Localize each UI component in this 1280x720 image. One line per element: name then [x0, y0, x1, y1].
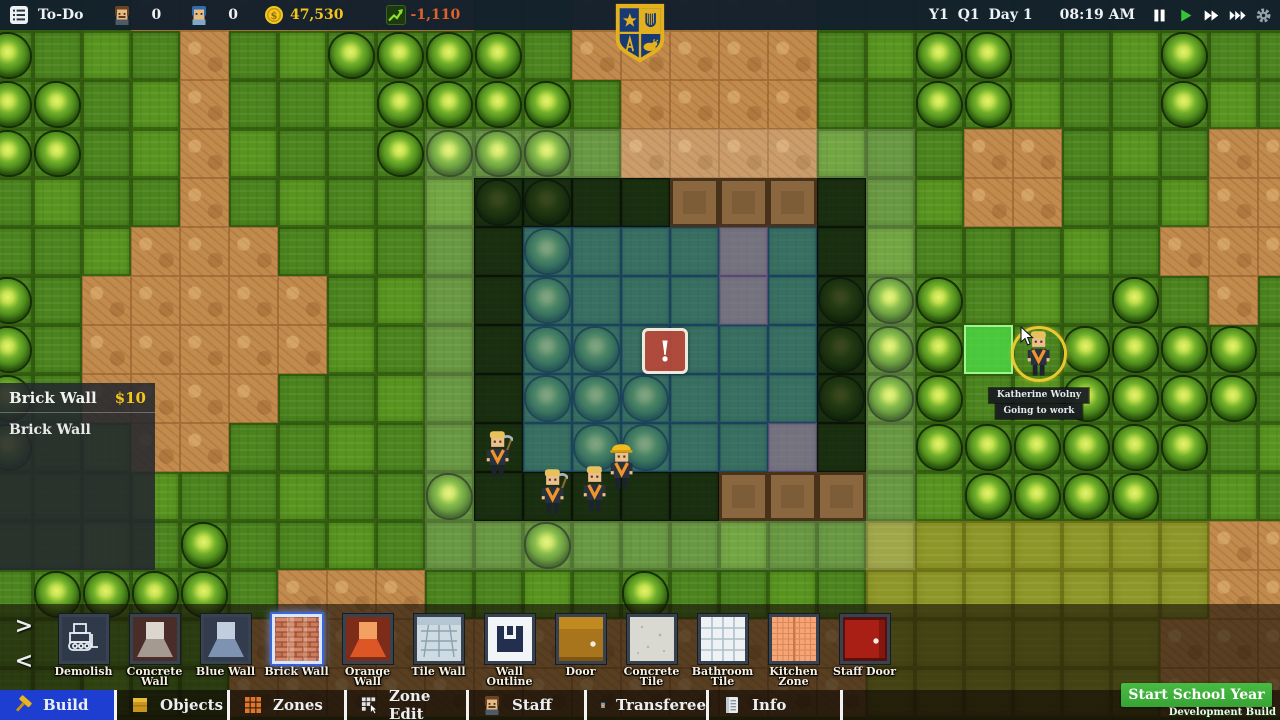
bush-icon [1114, 377, 1157, 420]
brick-wall-label: Brick Wall [264, 667, 328, 677]
construction-margin-tile [425, 521, 474, 570]
concrete-wall-icon[interactable] [130, 614, 180, 664]
staff-person-icon [482, 695, 502, 715]
construction-margin-tile [425, 423, 474, 472]
planned-floor-tile [523, 276, 572, 325]
quarter-label: Q1 [958, 7, 980, 23]
map-tile[interactable] [1111, 80, 1160, 129]
map-tile[interactable] [278, 80, 327, 129]
construction-worker[interactable] [538, 468, 568, 516]
map-tile[interactable] [327, 325, 376, 374]
map-tile[interactable] [376, 227, 425, 276]
planned-floor-tile [768, 227, 817, 276]
year-label: Y1 [929, 7, 949, 23]
map-tile[interactable] [278, 31, 327, 80]
fast-forward-button[interactable] [1203, 7, 1220, 24]
map-tile[interactable] [817, 31, 866, 80]
map-tile[interactable] [1062, 31, 1111, 80]
map-tile[interactable] [1160, 521, 1209, 570]
construction-margin-tile [719, 521, 768, 570]
bush-icon [477, 83, 520, 126]
bush-icon [918, 328, 961, 371]
map-tile[interactable] [964, 472, 1013, 521]
construction-worker[interactable] [607, 443, 637, 491]
map-tile[interactable] [1062, 521, 1111, 570]
map-tile[interactable] [180, 374, 229, 423]
money-amount: 47,530 [290, 7, 344, 23]
map-tile[interactable] [278, 521, 327, 570]
map-tile[interactable] [474, 31, 523, 80]
map-tile[interactable] [376, 80, 425, 129]
planned-floor-tile [719, 423, 768, 472]
map-tile[interactable] [915, 472, 964, 521]
map-tile[interactable] [1062, 276, 1111, 325]
planned-wall-tile [474, 276, 523, 325]
bathroom-tile-icon[interactable] [698, 614, 748, 664]
map-tile[interactable] [1013, 31, 1062, 80]
map-tile[interactable] [376, 178, 425, 227]
map-tile[interactable] [670, 80, 719, 129]
tool-kitchen-zone[interactable]: Kitchen Zone [758, 614, 829, 687]
map-tile[interactable] [964, 227, 1013, 276]
construction-margin-tile [523, 521, 572, 570]
demolish-icon[interactable] [59, 614, 109, 664]
map-tile[interactable] [1258, 227, 1280, 276]
map-tile[interactable] [82, 227, 131, 276]
settings-button[interactable] [1255, 7, 1272, 24]
map-tile[interactable] [1258, 325, 1280, 374]
tool-concrete-tile[interactable]: Concrete Tile [616, 614, 687, 687]
map-tile[interactable] [1209, 521, 1258, 570]
map-tile[interactable] [866, 31, 915, 80]
map-tile[interactable] [327, 80, 376, 129]
construction-margin-tile [474, 521, 523, 570]
bush-icon [1114, 328, 1157, 371]
map-tile[interactable] [425, 31, 474, 80]
map-tile[interactable] [278, 374, 327, 423]
map-tile[interactable] [1062, 80, 1111, 129]
map-tile[interactable] [229, 227, 278, 276]
map-tile[interactable] [1062, 129, 1111, 178]
map-tile[interactable] [915, 31, 964, 80]
map-tile[interactable] [0, 80, 33, 129]
planned-wall-tile [719, 472, 768, 521]
toolbar-next-arrow[interactable]: > [12, 615, 36, 637]
tool-brick-wall[interactable]: Brick Wall [261, 614, 332, 687]
map-tile[interactable] [131, 227, 180, 276]
map-tile[interactable] [1013, 423, 1062, 472]
map-tile[interactable] [1111, 423, 1160, 472]
start-school-year-button[interactable]: Start School Year [1121, 683, 1272, 707]
tool-staff-door[interactable]: Staff Door [829, 614, 900, 687]
map-tile[interactable] [131, 276, 180, 325]
student-icon[interactable] [189, 5, 209, 25]
pause-button[interactable] [1151, 7, 1168, 24]
tool-tile-wall[interactable]: Tile Wall [403, 614, 474, 687]
map-tile[interactable] [33, 31, 82, 80]
map-tile[interactable] [1111, 276, 1160, 325]
mouse-cursor-icon [1020, 326, 1035, 351]
map-tile[interactable] [572, 80, 621, 129]
map-tile[interactable] [474, 80, 523, 129]
map-tile[interactable] [1013, 80, 1062, 129]
map-tile[interactable] [229, 374, 278, 423]
map-tile[interactable] [1160, 374, 1209, 423]
map-tile[interactable] [915, 521, 964, 570]
map-tile[interactable] [915, 129, 964, 178]
construction-alert-icon[interactable]: ! [642, 328, 688, 374]
map-tile[interactable] [327, 178, 376, 227]
map-tile[interactable] [1013, 472, 1062, 521]
tab-staff[interactable]: Staff [469, 690, 587, 720]
map-tile[interactable] [180, 227, 229, 276]
graph-icon[interactable] [386, 5, 406, 25]
map-tile[interactable] [964, 521, 1013, 570]
construction-margin-tile [425, 227, 474, 276]
tooltip-character-name: Katherine Wolny [989, 388, 1089, 403]
tab-objects[interactable]: Objects [117, 690, 230, 720]
map-tile[interactable] [1062, 178, 1111, 227]
map-tile[interactable] [180, 472, 229, 521]
tab-transferee-label: Transferee [616, 696, 706, 714]
door-icon[interactable] [556, 614, 606, 664]
map-tile[interactable] [1209, 374, 1258, 423]
bush-icon [967, 475, 1010, 518]
bush-icon [0, 83, 30, 126]
map-tile[interactable] [33, 80, 82, 129]
map-tile[interactable] [82, 80, 131, 129]
tab-build[interactable]: Build [0, 690, 117, 720]
map-tile[interactable] [1062, 423, 1111, 472]
planned-floor-tile [572, 325, 621, 374]
map-tile[interactable] [1111, 521, 1160, 570]
map-tile[interactable] [327, 472, 376, 521]
map-tile[interactable] [768, 80, 817, 129]
map-tile[interactable] [523, 80, 572, 129]
bush-icon [918, 34, 961, 77]
orange-wall-label: Orange Wall [332, 667, 403, 687]
map-tile[interactable] [1160, 31, 1209, 80]
map-tile[interactable] [1209, 276, 1258, 325]
map-tile[interactable] [376, 31, 425, 80]
map-tile[interactable] [1062, 325, 1111, 374]
map-tile[interactable] [229, 472, 278, 521]
map-tile[interactable] [1258, 521, 1280, 570]
map-tile[interactable] [1013, 178, 1062, 227]
map-tile[interactable] [327, 31, 376, 80]
planned-floor-tile [621, 276, 670, 325]
construction-margin-tile [572, 129, 621, 178]
map-tile[interactable] [915, 374, 964, 423]
construction-margin-tile [866, 325, 915, 374]
map-tile[interactable] [1258, 374, 1280, 423]
map-tile[interactable] [278, 178, 327, 227]
map-tile[interactable] [327, 423, 376, 472]
map-tile[interactable] [0, 227, 33, 276]
planned-floor-tile [572, 227, 621, 276]
map-tile[interactable] [1209, 129, 1258, 178]
bush-icon [0, 279, 30, 322]
map-tile[interactable] [180, 423, 229, 472]
map-tile[interactable] [1209, 423, 1258, 472]
map-tile[interactable] [278, 276, 327, 325]
map-tile[interactable] [1209, 227, 1258, 276]
map-tile[interactable] [964, 423, 1013, 472]
planned-floor-tile [768, 423, 817, 472]
map-tile[interactable] [915, 423, 964, 472]
map-tile[interactable] [82, 178, 131, 227]
map-tile[interactable] [1258, 129, 1280, 178]
map-tile[interactable] [1013, 227, 1062, 276]
map-tile[interactable] [327, 276, 376, 325]
map-tile[interactable] [1209, 178, 1258, 227]
map-tile[interactable] [964, 178, 1013, 227]
map-tile[interactable] [0, 276, 33, 325]
map-tile[interactable] [180, 276, 229, 325]
planned-floor-tile [670, 374, 719, 423]
map-tile[interactable] [327, 374, 376, 423]
map-tile[interactable] [229, 31, 278, 80]
planned-wall-tile [474, 325, 523, 374]
box-icon [130, 695, 150, 715]
toolbar-prev-arrow[interactable]: < [12, 650, 36, 672]
wall-outline-icon[interactable] [485, 614, 535, 664]
coin-icon[interactable]: $ [264, 5, 284, 25]
planned-floor-tile [670, 423, 719, 472]
tool-wall-outline[interactable]: Wall Outline [474, 614, 545, 687]
tab-zone-edit[interactable]: Zone Edit [347, 690, 469, 720]
todo-label[interactable]: To-Do [38, 7, 83, 23]
map-tile[interactable] [915, 80, 964, 129]
map-tile[interactable] [1160, 472, 1209, 521]
map-tile[interactable] [82, 31, 131, 80]
map-tile[interactable] [229, 521, 278, 570]
tool-concrete-wall[interactable]: Concrete Wall [119, 614, 190, 687]
map-tile[interactable] [229, 129, 278, 178]
map-tile[interactable] [0, 31, 33, 80]
tab-objects-label: Objects [160, 696, 223, 714]
planned-floor-tile [572, 374, 621, 423]
map-tile[interactable] [376, 521, 425, 570]
map-tile[interactable] [0, 178, 33, 227]
map-tile[interactable] [1209, 472, 1258, 521]
construction-margin-tile [572, 521, 621, 570]
play-button[interactable] [1177, 7, 1194, 24]
map-tile[interactable] [1160, 423, 1209, 472]
orange-wall-icon[interactable] [343, 614, 393, 664]
map-tile[interactable] [82, 276, 131, 325]
map-tile[interactable] [768, 31, 817, 80]
map-tile[interactable] [33, 227, 82, 276]
construction-worker[interactable] [483, 430, 513, 478]
map-tile[interactable] [1111, 472, 1160, 521]
map-tile[interactable] [376, 276, 425, 325]
construction-margin-tile [621, 129, 670, 178]
map-tile[interactable] [180, 521, 229, 570]
map-tile[interactable] [1111, 227, 1160, 276]
construction-margin-tile [817, 521, 866, 570]
map-tile[interactable] [229, 80, 278, 129]
todo-list-icon[interactable] [9, 5, 29, 25]
map-tile[interactable] [0, 129, 33, 178]
tool-door[interactable]: Door [545, 614, 616, 687]
planned-floor-tile [768, 325, 817, 374]
map-tile[interactable] [278, 472, 327, 521]
map-tile[interactable] [915, 178, 964, 227]
teacher-icon[interactable] [112, 5, 132, 25]
map-tile[interactable] [33, 129, 82, 178]
construction-margin-tile [425, 276, 474, 325]
map-tile[interactable] [621, 80, 670, 129]
tab-transferee[interactable]: Transferee [587, 690, 709, 720]
map-tile[interactable] [964, 129, 1013, 178]
map-tile[interactable] [1160, 276, 1209, 325]
map-tile[interactable] [0, 325, 33, 374]
map-tile[interactable] [131, 31, 180, 80]
fastest-forward-button[interactable] [1229, 7, 1246, 24]
map-tile[interactable] [866, 80, 915, 129]
map-tile[interactable] [33, 325, 82, 374]
tab-info[interactable]: Info [709, 690, 843, 720]
map-tile[interactable] [1258, 31, 1280, 80]
map-tile[interactable] [1160, 129, 1209, 178]
map-tile[interactable] [229, 178, 278, 227]
construction-margin-tile [670, 521, 719, 570]
map-tile[interactable] [131, 325, 180, 374]
map-tile[interactable] [1111, 31, 1160, 80]
tool-demolish[interactable]: Demolish [48, 614, 119, 687]
map-tile[interactable] [1209, 325, 1258, 374]
bathroom-tile-label: Bathroom Tile [687, 667, 758, 687]
map-tile[interactable] [915, 325, 964, 374]
map-tile[interactable] [1258, 472, 1280, 521]
map-tile[interactable] [523, 31, 572, 80]
map-tile[interactable] [376, 129, 425, 178]
map-tile[interactable] [1258, 80, 1280, 129]
planned-floor-tile [621, 227, 670, 276]
bush-icon [918, 83, 961, 126]
map-tile[interactable] [180, 178, 229, 227]
map-tile[interactable] [1160, 80, 1209, 129]
map-tile[interactable] [1013, 521, 1062, 570]
map-tile[interactable] [278, 325, 327, 374]
planned-wall-tile [719, 178, 768, 227]
bush-icon [967, 34, 1010, 77]
map-tile[interactable] [670, 31, 719, 80]
map-tile[interactable] [229, 325, 278, 374]
map-tile[interactable] [180, 325, 229, 374]
map-tile[interactable] [82, 129, 131, 178]
map-tile[interactable] [180, 31, 229, 80]
map-tile[interactable] [1111, 374, 1160, 423]
map-tile[interactable] [1258, 423, 1280, 472]
tool-bathroom-tile[interactable]: Bathroom Tile [687, 614, 758, 687]
map-tile[interactable] [376, 325, 425, 374]
time-label: 08:19 AM [1060, 7, 1135, 23]
map-tile[interactable] [1258, 276, 1280, 325]
map-tile[interactable] [964, 31, 1013, 80]
blue-wall-icon[interactable] [201, 614, 251, 664]
planned-wall-tile [523, 178, 572, 227]
bush-icon [1163, 426, 1206, 469]
map-tile[interactable] [1111, 129, 1160, 178]
map-tile[interactable] [1111, 178, 1160, 227]
planned-floor-tile [768, 374, 817, 423]
map-tile[interactable] [1258, 178, 1280, 227]
map-tile[interactable] [1160, 325, 1209, 374]
tab-zones[interactable]: Zones [230, 690, 347, 720]
concrete-tile-icon[interactable] [627, 614, 677, 664]
map-tile[interactable] [180, 129, 229, 178]
day-label: Day 1 [989, 7, 1033, 23]
bush-icon [183, 524, 226, 567]
map-tile[interactable] [425, 80, 474, 129]
tool-orange-wall[interactable]: Orange Wall [332, 614, 403, 687]
construction-margin-tile [817, 129, 866, 178]
bush-icon [967, 83, 1010, 126]
tool-blue-wall[interactable]: Blue Wall [190, 614, 261, 687]
map-tile[interactable] [229, 423, 278, 472]
brick-wall-icon[interactable] [272, 614, 322, 664]
map-tile[interactable] [1111, 325, 1160, 374]
map-tile[interactable] [376, 374, 425, 423]
map-tile[interactable] [719, 80, 768, 129]
map-tile[interactable] [82, 325, 131, 374]
zone-edit-icon [360, 695, 379, 715]
map-tile[interactable] [327, 521, 376, 570]
map-tile[interactable] [131, 129, 180, 178]
map-tile[interactable] [376, 472, 425, 521]
map-tile[interactable] [1209, 80, 1258, 129]
map-tile[interactable] [229, 276, 278, 325]
map-tile[interactable] [964, 80, 1013, 129]
staff-door-icon[interactable] [840, 614, 890, 664]
map-tile[interactable] [1160, 227, 1209, 276]
map-tile[interactable] [1160, 178, 1209, 227]
map-tile[interactable] [1209, 31, 1258, 80]
map-tile[interactable] [327, 227, 376, 276]
planned-floor-tile [719, 276, 768, 325]
map-tile[interactable] [376, 423, 425, 472]
map-tile[interactable] [1013, 129, 1062, 178]
hover-highlight-tile[interactable] [964, 325, 1013, 374]
map-tile[interactable] [964, 276, 1013, 325]
concrete-tile-label: Concrete Tile [616, 667, 687, 687]
map-tile[interactable] [131, 178, 180, 227]
map-tile[interactable] [33, 276, 82, 325]
bush-icon [1016, 475, 1059, 518]
kitchen-zone-icon[interactable] [769, 614, 819, 664]
map-tile[interactable] [1062, 472, 1111, 521]
map-tile[interactable] [915, 227, 964, 276]
concrete-wall-label: Concrete Wall [119, 667, 190, 687]
map-tile[interactable] [817, 80, 866, 129]
map-tile[interactable] [719, 31, 768, 80]
map-tile[interactable] [33, 178, 82, 227]
map-tile[interactable] [278, 227, 327, 276]
map-tile[interactable] [1013, 276, 1062, 325]
map-tile[interactable] [915, 276, 964, 325]
zones-grid-icon [243, 695, 263, 715]
map-tile[interactable] [131, 80, 180, 129]
tile-wall-icon[interactable] [414, 614, 464, 664]
map-tile[interactable] [278, 129, 327, 178]
map-tile[interactable] [180, 80, 229, 129]
construction-worker[interactable] [580, 465, 610, 513]
map-tile[interactable] [327, 129, 376, 178]
map-tile[interactable] [278, 423, 327, 472]
map-tile[interactable] [1062, 227, 1111, 276]
